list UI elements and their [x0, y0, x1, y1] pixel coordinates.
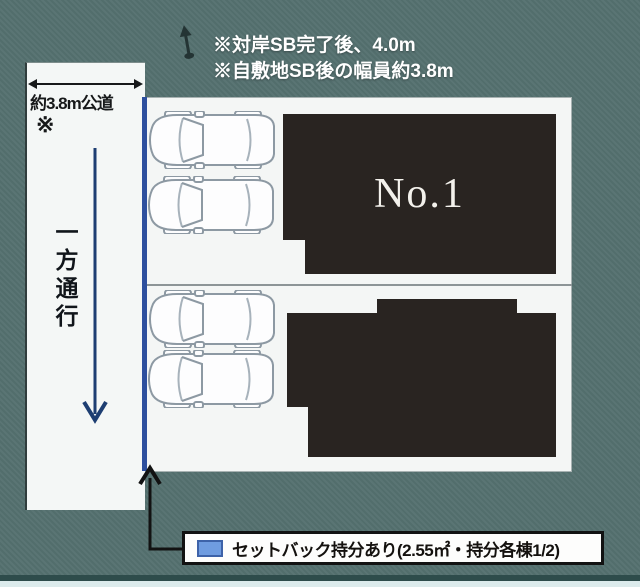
building-no2 [287, 299, 556, 457]
setback-legend-label: セットバック持分あり(2.55㎡・持分各棟1/2) [232, 536, 560, 561]
road-note-mark: ※ [36, 112, 54, 138]
setback-legend: セットバック持分あり(2.55㎡・持分各棟1/2) [182, 531, 604, 565]
building-no1: No.1 [283, 114, 556, 274]
building-no1-label: No.1 [374, 170, 465, 218]
north-arrow-icon [173, 24, 201, 62]
bottom-light-band [0, 581, 640, 587]
one-way-label: 一方通行 [48, 220, 82, 332]
site-plan-canvas: ※対岸SB完了後、4.0m ※自敷地SB後の幅員約3.8m 約3.8m公道 ※ … [0, 0, 640, 587]
plot-divider-line [145, 284, 572, 286]
car-icon [147, 111, 279, 169]
one-way-arrow-icon [82, 148, 108, 428]
road-width-label: 約3.8m公道 [30, 89, 144, 114]
setback-swatch-icon [197, 540, 223, 557]
note-own-setback: ※自敷地SB後の幅員約3.8m [213, 56, 454, 83]
car-icon [147, 290, 279, 348]
car-icon [146, 350, 278, 408]
note-opposite-setback: ※対岸SB完了後、4.0m [213, 30, 416, 57]
car-icon [146, 176, 278, 234]
